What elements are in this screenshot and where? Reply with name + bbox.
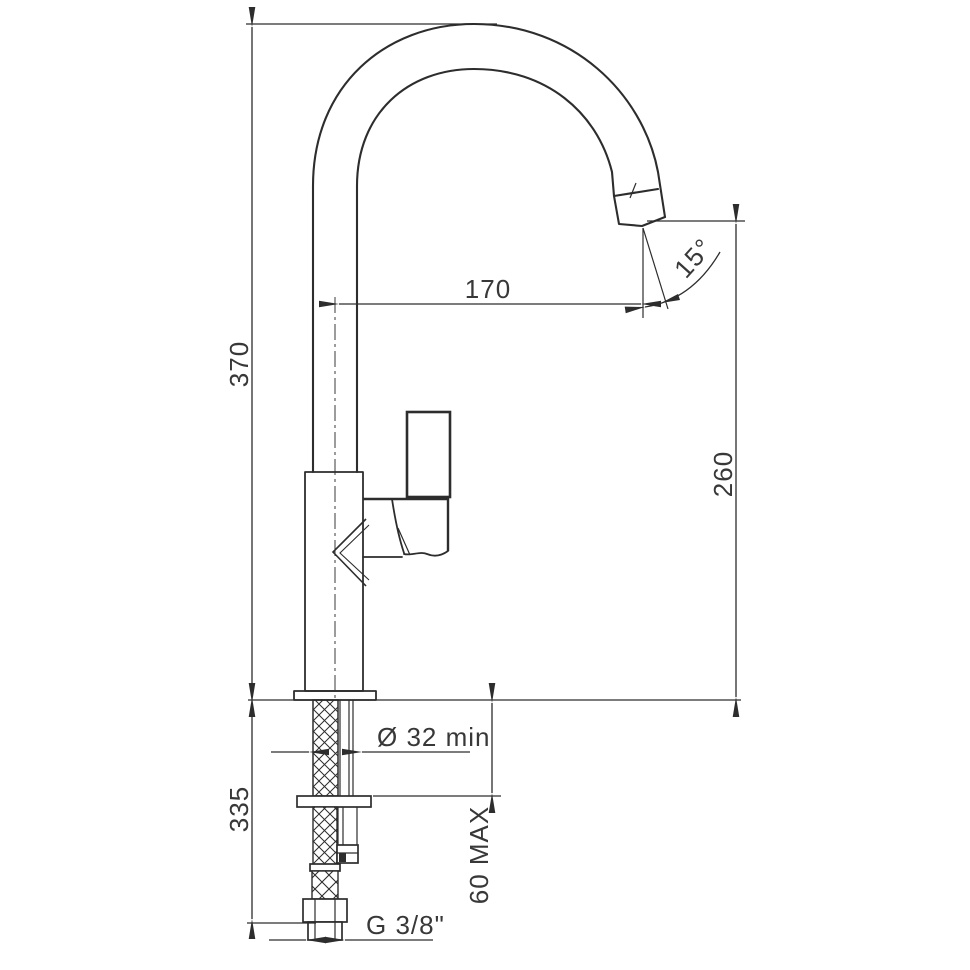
- supply-tube: [338, 700, 357, 845]
- body-column: [305, 472, 363, 691]
- dim-outlet-height-label: 260: [708, 451, 738, 497]
- dim-max-counter-thickness-label: 60 MAX: [464, 806, 494, 905]
- faucet-body: [294, 24, 665, 700]
- dim-mounting-hole-label: Ø 32 min: [377, 722, 491, 752]
- dim-spout-reach-label: 170: [465, 274, 511, 304]
- dim-under-counter-length: 335: [224, 703, 316, 923]
- dim-overall-height-label: 370: [224, 341, 254, 387]
- braided-hose: [313, 807, 337, 866]
- dim-overall-height: 370: [224, 24, 497, 697]
- fitting-seal: [339, 853, 346, 862]
- nut-tail: [308, 922, 342, 940]
- dim-spout-angle-label: 15°: [668, 232, 719, 284]
- threaded-shank: [313, 700, 338, 796]
- under-counter-assembly: [297, 700, 371, 940]
- dim-supply-thread: G 3/8": [269, 910, 445, 940]
- break-line: [404, 551, 448, 556]
- hose-lower-braid: [312, 871, 338, 899]
- mounting-washer: [297, 796, 371, 807]
- dim-spout-reach: 170: [339, 274, 641, 304]
- faucet-dimension-drawing: 370 335 170 260 15° Ø 32 min 60 MAX G 3/…: [0, 0, 970, 970]
- dim-under-counter-length-label: 335: [224, 786, 254, 832]
- gooseneck-spout: [313, 24, 665, 472]
- cartridge-housing: [363, 497, 448, 557]
- handle-lever: [407, 412, 450, 497]
- hose-collar: [310, 864, 340, 871]
- aerator-joint: [614, 189, 658, 196]
- dim-outlet-height: 260: [647, 221, 745, 697]
- dim-spout-angle: 15°: [643, 228, 720, 318]
- hex-connection-nut: [303, 899, 347, 940]
- check-valve-fitting: [337, 845, 358, 863]
- dim-supply-thread-label: G 3/8": [366, 910, 445, 940]
- shank-braid: [313, 700, 338, 796]
- drawing-canvas: 370 335 170 260 15° Ø 32 min 60 MAX G 3/…: [0, 0, 970, 970]
- dim-mounting-hole-diameter: Ø 32 min: [271, 722, 491, 752]
- handle: [363, 412, 450, 557]
